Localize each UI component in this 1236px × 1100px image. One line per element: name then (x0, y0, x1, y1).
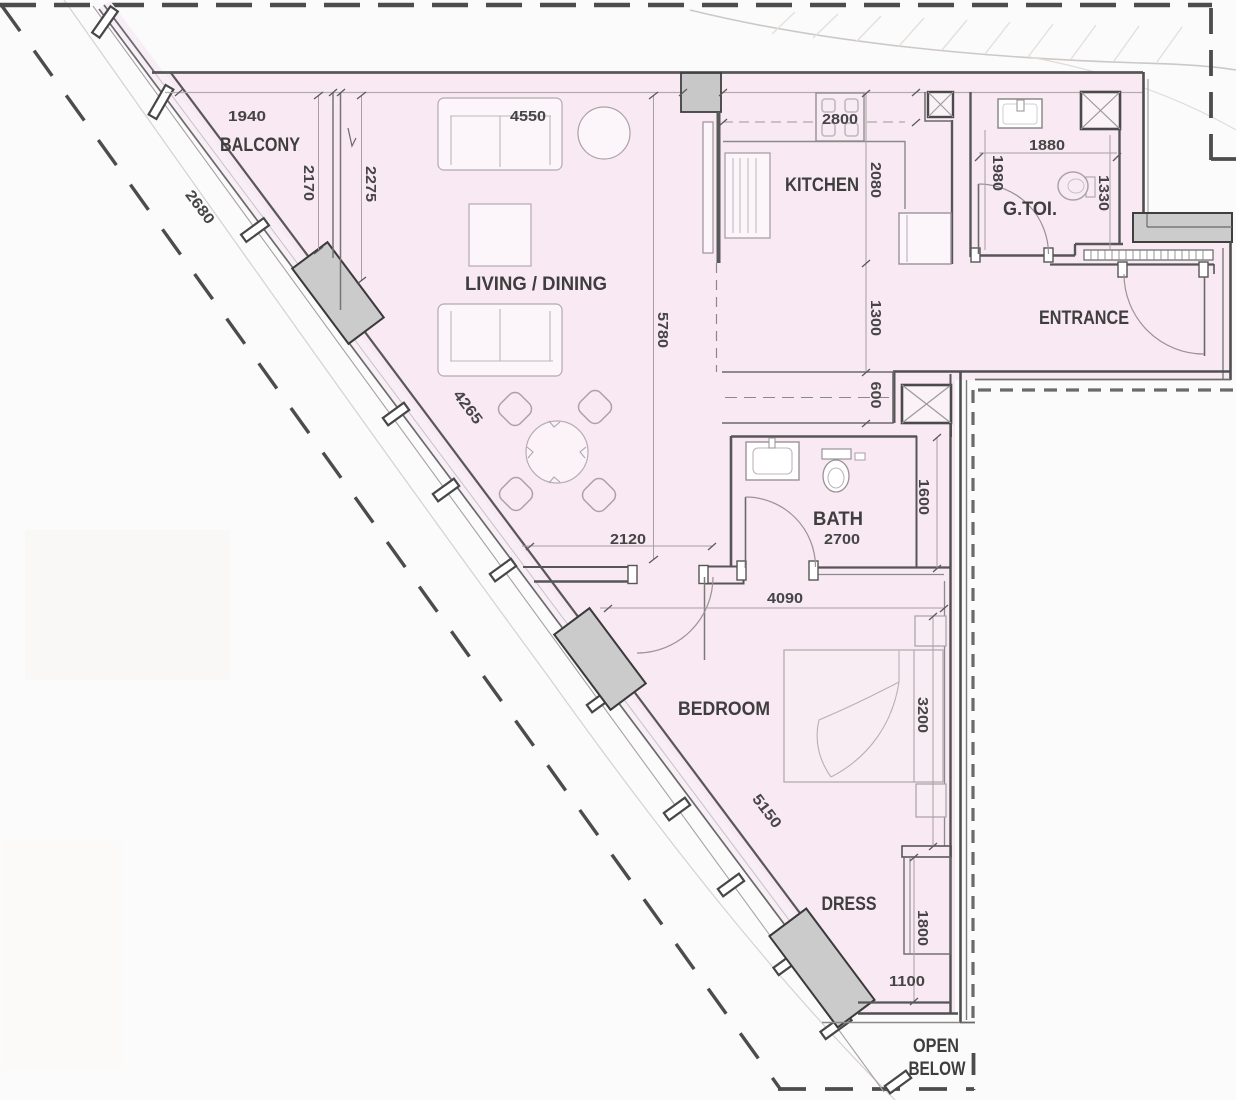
svg-text:2120: 2120 (610, 531, 646, 548)
svg-text:5780: 5780 (654, 312, 671, 348)
svg-text:1880: 1880 (1029, 137, 1065, 154)
svg-text:2700: 2700 (824, 531, 860, 548)
svg-text:2170: 2170 (300, 165, 317, 201)
svg-text:BELOW: BELOW (909, 1059, 966, 1080)
svg-text:2080: 2080 (867, 162, 884, 198)
svg-text:OPEN: OPEN (913, 1036, 959, 1057)
svg-text:4090: 4090 (767, 590, 803, 607)
svg-text:1940: 1940 (228, 108, 266, 125)
svg-text:1980: 1980 (989, 155, 1006, 191)
svg-text:G.TOI.: G.TOI. (1003, 199, 1057, 220)
svg-text:2800: 2800 (822, 111, 858, 128)
svg-text:1300: 1300 (867, 300, 884, 336)
svg-text:1330: 1330 (1095, 175, 1112, 211)
svg-text:3200: 3200 (914, 697, 931, 733)
svg-text:600: 600 (867, 382, 884, 409)
svg-text:4550: 4550 (510, 108, 546, 125)
svg-text:BATH: BATH (813, 509, 863, 530)
svg-text:2275: 2275 (362, 166, 379, 202)
svg-text:LIVING / DINING: LIVING / DINING (465, 274, 607, 295)
svg-text:DRESS: DRESS (822, 894, 877, 915)
svg-text:1100: 1100 (889, 973, 925, 990)
svg-text:BEDROOM: BEDROOM (678, 699, 770, 720)
svg-text:KITCHEN: KITCHEN (785, 175, 859, 196)
svg-text:ENTRANCE: ENTRANCE (1039, 308, 1129, 329)
svg-text:1600: 1600 (915, 479, 932, 515)
svg-text:BALCONY: BALCONY (220, 135, 300, 156)
svg-text:1800: 1800 (914, 910, 931, 946)
